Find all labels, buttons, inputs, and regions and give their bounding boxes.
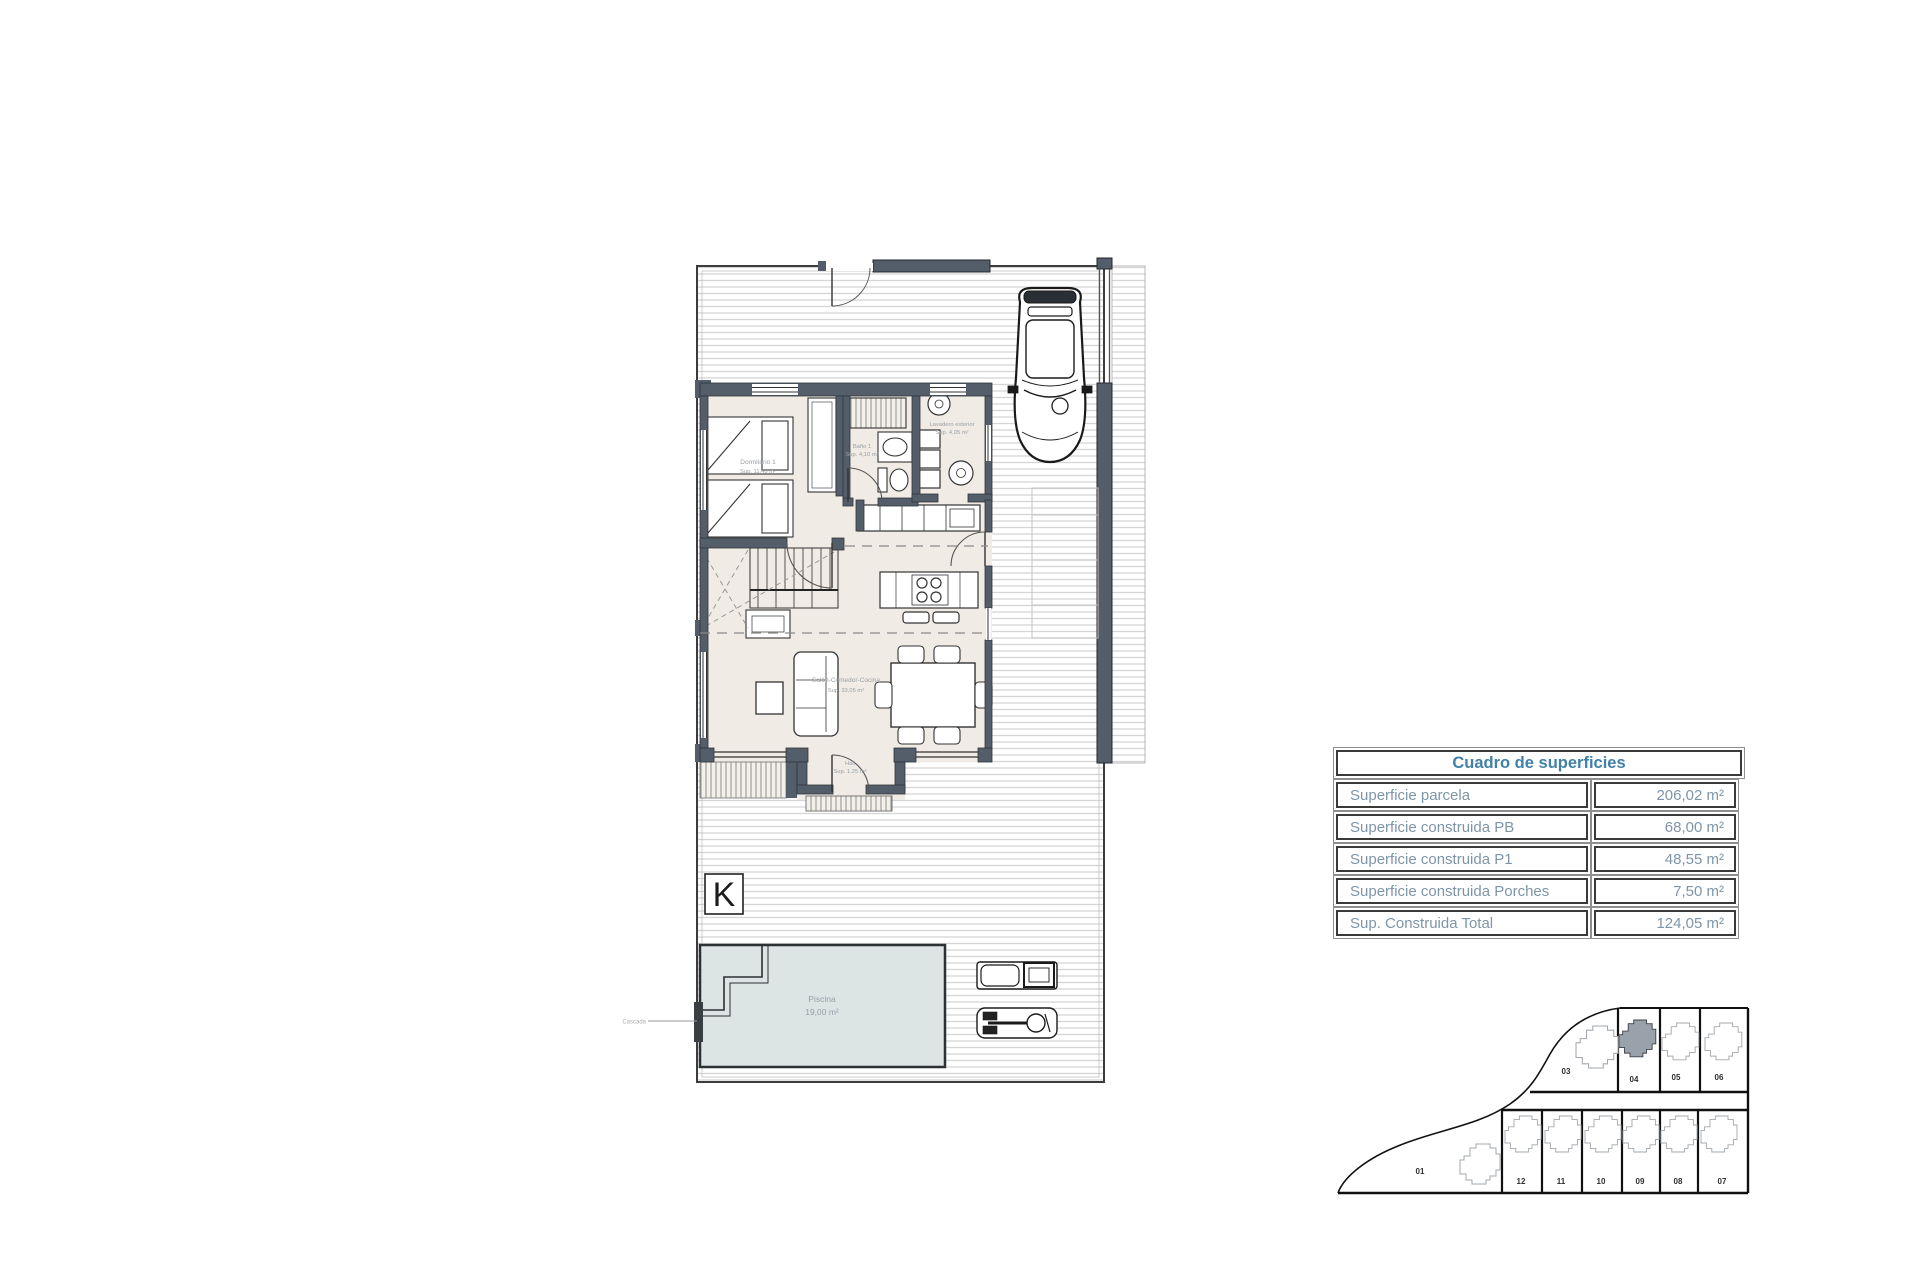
cabinet-icon	[746, 610, 790, 638]
plot-label: 08	[1674, 1177, 1683, 1186]
plot-label: 03	[1562, 1067, 1571, 1076]
car-icon	[1008, 288, 1092, 462]
pool-label: Piscina	[808, 994, 836, 1004]
surface-row-label: Superficie parcela	[1336, 782, 1588, 808]
dining-table-icon	[891, 663, 975, 727]
plan-drawing: Cascada Piscina 19,00 m² K Dormit	[0, 0, 1920, 1280]
architectural-plan-page: Cascada Piscina 19,00 m² K Dormit	[0, 0, 1920, 1280]
house-footprint	[1505, 1116, 1541, 1152]
bedroom-label: Dormitorio 1	[740, 459, 776, 466]
plot-label: 11	[1557, 1177, 1566, 1186]
hall-label: Hall	[845, 761, 855, 767]
house-footprint	[1662, 1023, 1699, 1060]
plot-label: 01	[1416, 1167, 1425, 1176]
table-row: Superficie parcela 206,02 m²	[1336, 782, 1742, 808]
surface-table: Cuadro de superficies Superficie parcela…	[1336, 750, 1742, 942]
house-footprint	[1701, 1116, 1737, 1152]
laundry-area-label: Sup. 4,05 m²	[935, 430, 968, 436]
living-area-label: Sup. 33,05 m²	[828, 688, 864, 694]
house-footprint	[1576, 1026, 1618, 1068]
living-label: Salón-Comedor-Cocina	[812, 677, 880, 684]
plot-label: 06	[1715, 1073, 1724, 1082]
side-porch	[700, 762, 786, 798]
surface-row-value: 124,05 m²	[1594, 910, 1736, 936]
driveway-gate	[873, 260, 990, 272]
chair-icon	[875, 682, 892, 708]
cascade-label: Cascada	[622, 1020, 646, 1026]
mirror	[1082, 386, 1092, 393]
table-row: Sup. Construida Total 124,05 m²	[1336, 910, 1742, 936]
house-footprint	[1460, 1144, 1500, 1184]
building	[700, 383, 992, 811]
house-footprint	[1623, 1116, 1659, 1152]
plot-label: 09	[1636, 1177, 1645, 1186]
chair-icon	[934, 646, 960, 663]
sofa-icon	[794, 652, 838, 736]
compass-letter: K	[713, 876, 736, 914]
hall-area-label: Sup. 1,25 m²	[833, 769, 866, 775]
surface-table-title: Cuadro de superficies	[1452, 754, 1625, 773]
plot-label: 05	[1672, 1073, 1681, 1082]
surface-row-value: 206,02 m²	[1594, 782, 1736, 808]
house-footprint	[1585, 1116, 1621, 1152]
entry-step	[806, 796, 892, 811]
chair-icon	[898, 646, 924, 663]
highlighted-house-footprint	[1619, 1020, 1656, 1057]
site-plan: 01 03 04 05 06 12 11 10 09 08 07	[1338, 1008, 1748, 1193]
stool-icon	[933, 612, 959, 623]
surface-row-label: Superficie construida PB	[1336, 814, 1588, 840]
surface-table-header: Cuadro de superficies	[1336, 750, 1742, 776]
table-row: Superficie construida PB 68,00 m²	[1336, 814, 1742, 840]
plot-label: 07	[1718, 1177, 1727, 1186]
surface-row-label: Sup. Construida Total	[1336, 910, 1588, 936]
laundry-label: Lavadero exterior	[929, 422, 974, 428]
surface-row-label: Superficie construida Porches	[1336, 878, 1588, 904]
house-footprint	[1661, 1116, 1697, 1152]
chair-icon	[934, 727, 960, 744]
trailer-icon	[977, 962, 1057, 989]
pool-area-label: 19,00 m²	[805, 1007, 839, 1017]
surface-row-value: 68,00 m²	[1594, 814, 1736, 840]
cascade-feature	[694, 1002, 703, 1042]
tv-unit-icon	[756, 682, 783, 714]
hob-icon	[912, 575, 948, 605]
pool: Cascada Piscina 19,00 m²	[622, 945, 945, 1067]
chair-icon	[898, 727, 924, 744]
table-row: Superficie construida Porches 7,50 m²	[1336, 878, 1742, 904]
surface-row-value: 48,55 m²	[1594, 846, 1736, 872]
table-row: Superficie construida P1 48,55 m²	[1336, 846, 1742, 872]
bathroom-label: Baño 1	[853, 444, 871, 450]
bathroom-area-label: Sup. 4,10 m²	[845, 452, 878, 458]
house-footprint	[1705, 1023, 1742, 1060]
shower-icon	[848, 398, 906, 428]
house-footprint	[1545, 1116, 1581, 1152]
mirror	[1008, 386, 1018, 393]
surface-row-label: Superficie construida P1	[1336, 846, 1588, 872]
atv-icon	[977, 1008, 1057, 1038]
neighbour-deck	[1112, 266, 1145, 763]
north-box: K	[705, 874, 743, 914]
bedroom-area-label: Sup. 11,40 m²	[740, 469, 776, 475]
stool-icon	[903, 612, 929, 623]
surface-row-value: 7,50 m²	[1594, 878, 1736, 904]
plot-label-highlighted: 04	[1630, 1075, 1639, 1084]
plot-label: 10	[1597, 1177, 1606, 1186]
party-wall	[1097, 383, 1112, 763]
plot-label: 12	[1517, 1177, 1526, 1186]
